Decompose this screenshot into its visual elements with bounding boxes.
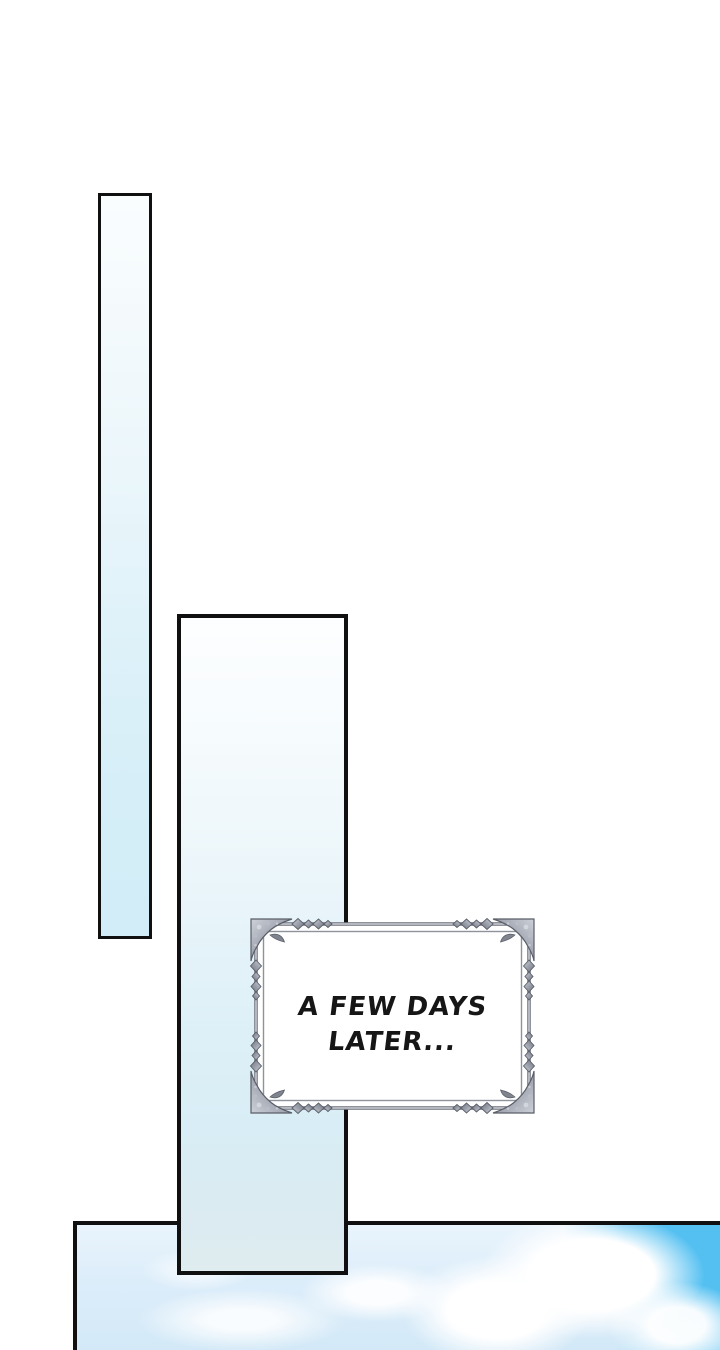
caption-line-1: A FEW DAYS (296, 990, 490, 1025)
comic-page: A FEW DAYS LATER... (0, 0, 720, 1350)
caption-line-2: LATER... (326, 1025, 459, 1060)
caption-text: A FEW DAYS LATER... (269, 946, 516, 1104)
panel-tall-left (98, 193, 152, 939)
panel-sky-clouds (73, 1221, 720, 1350)
caption-frame-box: A FEW DAYS LATER... (247, 915, 538, 1117)
